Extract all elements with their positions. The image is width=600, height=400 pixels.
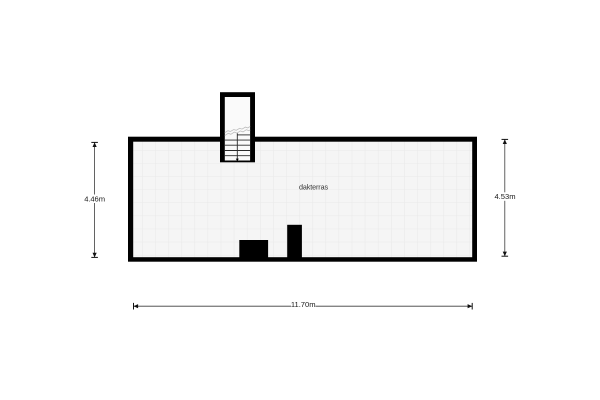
svg-text:4.46m: 4.46m bbox=[84, 194, 105, 203]
svg-text:4.53m: 4.53m bbox=[494, 192, 515, 201]
svg-text:dakterras: dakterras bbox=[299, 183, 328, 192]
svg-text:11.70m: 11.70m bbox=[291, 300, 316, 309]
